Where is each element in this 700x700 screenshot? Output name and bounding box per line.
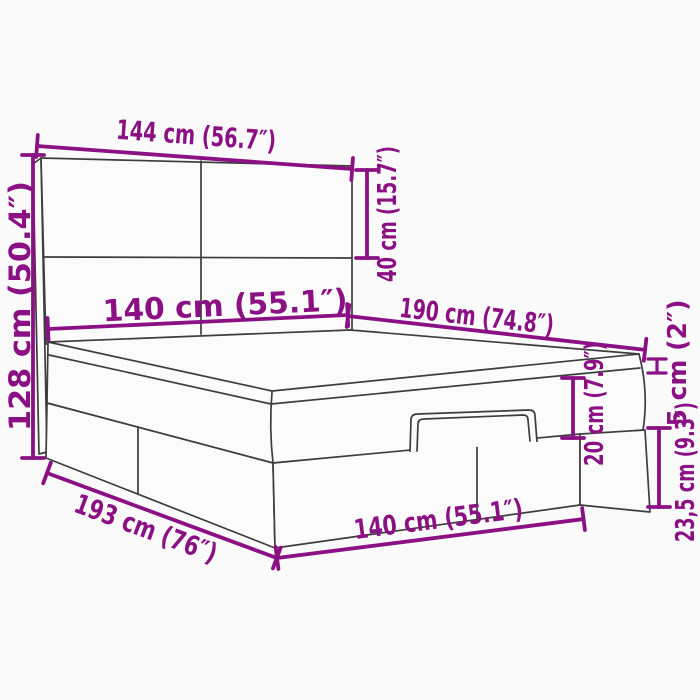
dim-tick	[47, 318, 48, 340]
dim-tick	[351, 158, 353, 180]
dim-label-headboard-top-height: 40 cm (15.7″)	[373, 146, 403, 282]
dim-headboard-top-height: 40 cm (15.7″)	[356, 146, 403, 282]
dim-label-base-height: 23,5 cm (9.3″)	[671, 402, 700, 542]
bed-illustration	[33, 158, 650, 548]
diagram-canvas: 144 cm (56.7″) 140 cm (55.1″) 190 cm (74…	[0, 0, 700, 700]
dim-label-total-height: 128 cm (50.4″)	[3, 181, 37, 431]
bed-dimensions-diagram: 144 cm (56.7″) 140 cm (55.1″) 190 cm (74…	[0, 0, 700, 700]
dim-label-headboard-width: 144 cm (56.7″)	[115, 115, 277, 158]
dim-tick	[644, 339, 646, 361]
dim-tick	[582, 508, 585, 530]
dim-label-mattress-thickness: 20 cm (7.9″)	[580, 342, 610, 466]
dim-label-mattress-length: 190 cm (74.8″)	[398, 293, 556, 341]
headboard-middle-seam	[43, 257, 352, 258]
dim-tick	[347, 305, 349, 327]
dim-base-height: 23,5 cm (9.3″)	[648, 402, 700, 542]
